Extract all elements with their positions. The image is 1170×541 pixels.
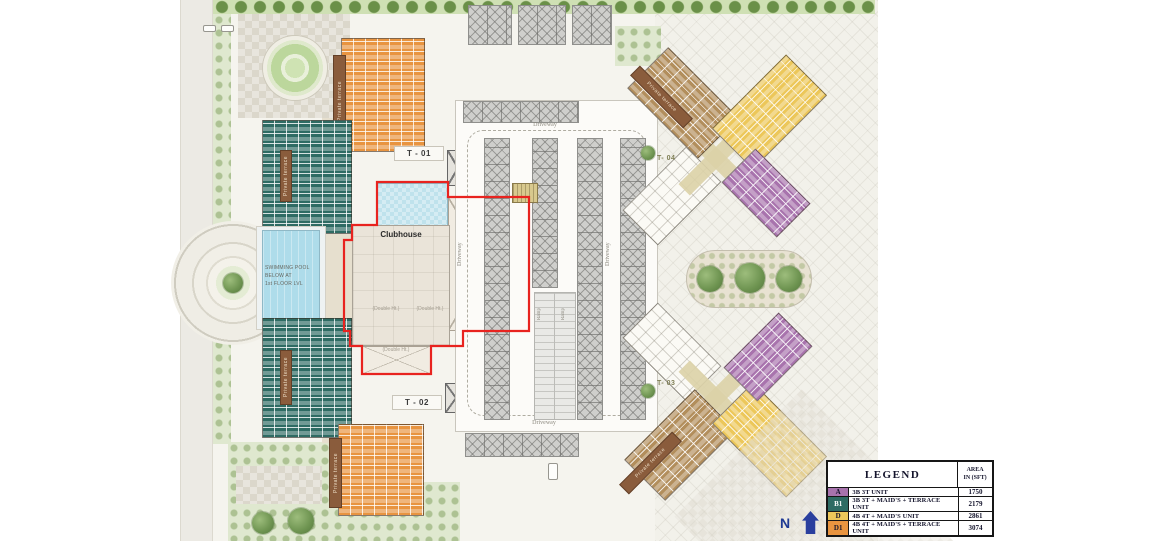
parking-bay-column — [484, 138, 510, 420]
legend-row: A 3B 3T UNIT 1750 — [828, 487, 992, 496]
private-terrace-strip: Private terrace — [280, 350, 292, 405]
legend-desc: 3B 3T + MAID'S + TERRACE UNIT — [849, 497, 958, 511]
legend-table: LEGEND AREA IN (SFT) A 3B 3T UNIT 1750 B… — [826, 460, 994, 537]
private-terrace-label: Private terrace — [283, 156, 289, 196]
north-service-blocks — [468, 5, 612, 45]
parked-car — [203, 25, 216, 32]
driveway-label-top: Driveway — [519, 122, 571, 128]
legend-area-value: 1750 — [958, 488, 992, 496]
legend-area-header-line2: IN (SFT) — [964, 475, 987, 483]
tower2-teal-wing — [262, 318, 352, 438]
ramp-label: Ramp — [537, 296, 547, 332]
legend-area-value: 3074 — [958, 521, 992, 535]
t03-marker-bush — [641, 384, 655, 398]
tower-02-text: T - 02 — [405, 398, 429, 407]
tower1-orange-wing-north — [341, 38, 425, 152]
parking-bay-row-north — [463, 101, 579, 123]
roundabout-center-bush — [223, 273, 243, 293]
driveway-label-right: Driveway — [605, 232, 615, 276]
parking-stair-block — [512, 183, 538, 203]
median-bush — [697, 266, 723, 292]
parked-car — [548, 463, 558, 480]
pool-note-line2: BELOW AT — [265, 272, 319, 280]
double-height-label: (Double Ht.) — [410, 307, 450, 312]
legend-row: D 4B 4T + MAID'S UNIT 2861 — [828, 511, 992, 520]
legend-title: LEGEND — [828, 462, 957, 487]
parking-bay-row-south — [465, 433, 579, 457]
ramp-label: Ramp — [561, 296, 571, 332]
t04-marker-bush — [641, 146, 655, 160]
service-block — [468, 5, 512, 45]
private-terrace-label: Private terrace — [333, 453, 339, 493]
parking-bay-column — [577, 138, 603, 420]
legend-swatch-b1: B1 — [828, 497, 849, 511]
mandala-garden — [263, 36, 327, 100]
legend-header-row: LEGEND AREA IN (SFT) — [828, 462, 992, 487]
legend-desc: 3B 3T UNIT — [849, 488, 958, 496]
tower-01-label: T - 01 — [394, 146, 444, 161]
tower1-teal-wing — [262, 120, 352, 234]
tower-04-label: T- 04 — [657, 155, 697, 162]
clubhouse-label: Clubhouse — [358, 230, 444, 239]
private-terrace-label: Private terrace — [283, 357, 289, 397]
legend-area-value: 2861 — [958, 512, 992, 520]
site-plan-canvas: Private terrace Private terrace SWIMMING… — [0, 0, 1170, 541]
private-terrace-strip: Private terrace — [280, 150, 292, 202]
legend-area-value: 2179 — [958, 497, 992, 511]
legend-swatch-d1: D1 — [828, 521, 849, 535]
tower-02-label: T - 02 — [392, 395, 442, 410]
double-height-label: (Double Ht.) — [366, 307, 406, 312]
legend-desc: 4B 4T + MAID'S UNIT — [849, 512, 958, 520]
legend-swatch-d: D — [828, 512, 849, 520]
clubhouse-main-hall — [352, 225, 450, 346]
legend-row: B1 3B 3T + MAID'S + TERRACE UNIT 2179 — [828, 496, 992, 511]
parked-car — [221, 25, 234, 32]
legend-swatch-a: A — [828, 488, 849, 496]
private-terrace-strip: Private terrace — [329, 438, 342, 508]
driveway-label-left: Driveway — [457, 232, 467, 276]
pool-note-line1: SWIMMING POOL — [265, 264, 319, 272]
pool-note: SWIMMING POOL BELOW AT 1st FLOOR LVL — [265, 264, 319, 288]
median-bush — [776, 266, 802, 292]
tree — [288, 508, 314, 534]
service-block — [572, 5, 612, 45]
tower-01-text: T - 01 — [407, 149, 431, 158]
tree — [252, 512, 274, 534]
double-height-label: (Double Ht.) — [376, 348, 416, 353]
tower-03-label: T- 03 — [657, 380, 697, 387]
legend-desc: 4B 4T + MAID'S + TERRACE UNIT — [849, 521, 958, 535]
driveway-label-bottom: Driveway — [518, 420, 570, 426]
legend-area-header-line1: AREA — [967, 467, 984, 475]
parking-bay-column — [532, 138, 558, 288]
north-label: N — [780, 515, 790, 531]
tower2-orange-wing-south — [338, 424, 424, 516]
median-palm — [735, 263, 765, 293]
service-block — [518, 5, 566, 45]
legend-row: D1 4B 4T + MAID'S + TERRACE UNIT 3074 — [828, 520, 992, 535]
parking-bay-column — [620, 138, 646, 420]
southwest-path-checker — [236, 466, 322, 504]
private-terrace-label: Private terrace — [337, 81, 343, 121]
clubhouse-pool-deck — [377, 183, 448, 226]
legend-area-header: AREA IN (SFT) — [957, 462, 992, 487]
pool-note-line3: 1st FLOOR LVL — [265, 280, 319, 288]
